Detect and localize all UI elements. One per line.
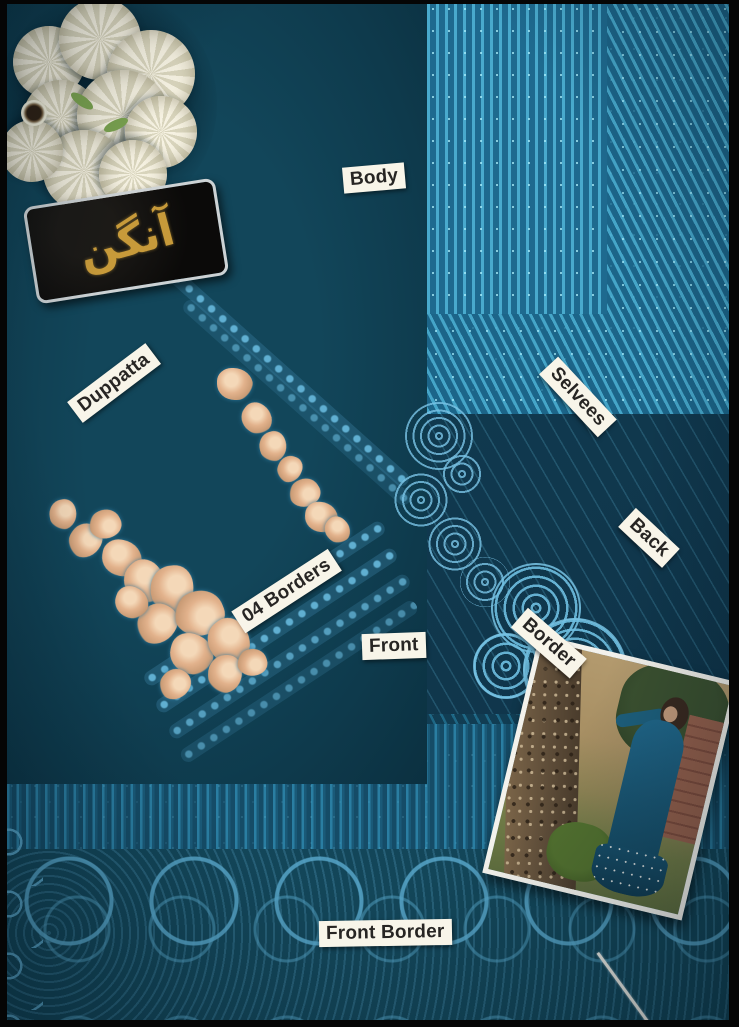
flower-center: [21, 100, 47, 126]
applique-flower: [217, 368, 253, 400]
crochet-ring: [439, 451, 485, 497]
label-front-border: Front Border: [319, 919, 452, 947]
label-body: Body: [342, 162, 406, 193]
photo-frame: آنگن Body Duppatta Selvees Back Border 0…: [0, 0, 739, 1027]
fabric-flatlay-photo: آنگن Body Duppatta Selvees Back Border 0…: [7, 4, 729, 1020]
bottom-left-lace-edge: [7, 824, 43, 1020]
label-front: Front: [362, 632, 426, 660]
brand-calligraphy: آنگن: [73, 204, 180, 278]
